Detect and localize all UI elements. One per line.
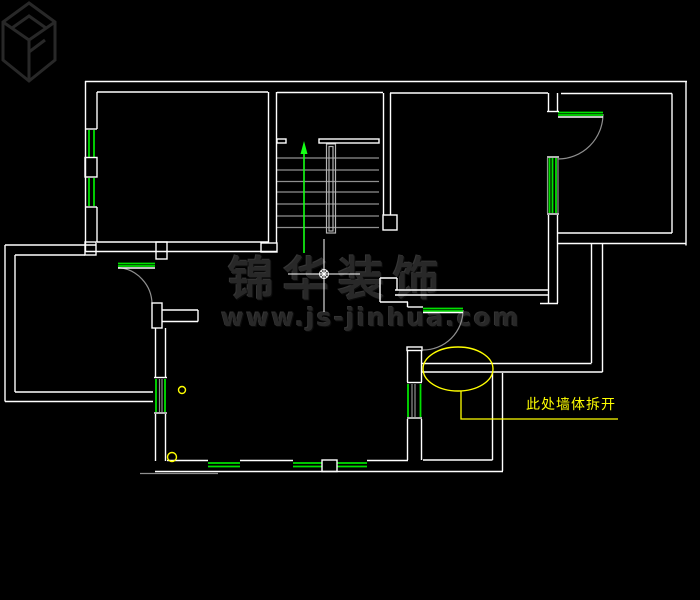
wall-box — [383, 215, 397, 230]
wall-box — [261, 243, 277, 252]
wall-box — [277, 139, 286, 143]
door-swing-arc — [423, 310, 463, 350]
highlight-ellipse — [423, 347, 493, 391]
wall-box — [407, 347, 422, 351]
wall-box — [85, 158, 97, 178]
stair-rail — [327, 144, 336, 233]
stair-up-arrow-head — [301, 141, 308, 154]
point-marker — [179, 387, 186, 394]
demolition-note-label: 此处墙体拆开 — [526, 398, 616, 413]
wall-box — [156, 242, 167, 259]
wall-box — [319, 139, 379, 143]
door-swing-arc — [558, 114, 603, 159]
floor-plan-canvas — [0, 0, 700, 600]
wall-box — [85, 242, 96, 255]
wall-box — [152, 303, 162, 328]
door-swing-arc — [118, 268, 152, 305]
cad-drawing-viewport[interactable]: 锦华装饰 www.js-jinhua.com 此处墙体拆开 — [0, 0, 700, 600]
stair-rail — [329, 147, 333, 232]
wall-box — [322, 460, 337, 472]
